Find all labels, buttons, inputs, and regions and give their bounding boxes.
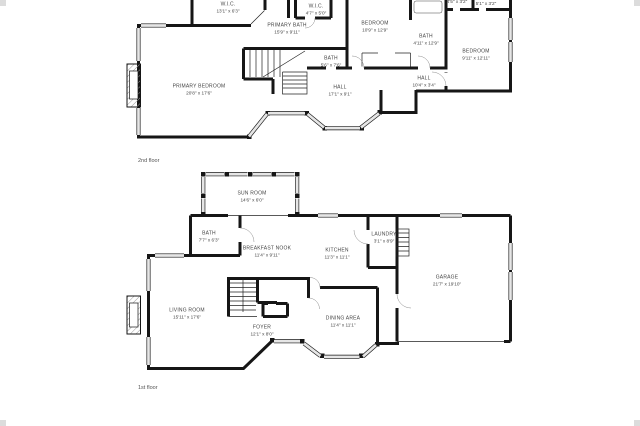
corner-mark <box>634 0 640 6</box>
first-floor-plan <box>127 172 511 369</box>
second-floor-stairs <box>244 49 348 95</box>
corner-mark <box>0 0 6 6</box>
second-floor-plan <box>127 0 511 139</box>
floor-label-2nd: 2nd floor <box>138 158 159 164</box>
floor-label-1st: 1st floor <box>138 385 158 391</box>
bay-post <box>300 339 305 344</box>
bay-post <box>270 338 275 343</box>
floor-plan-drawing <box>0 0 640 426</box>
second-floor-windows <box>139 18 511 137</box>
floor-plan-viewer: W.I.C. 13'1" x 6'3" PRIMARY BATH 15'9" x… <box>0 0 640 426</box>
sun-room-structure <box>201 172 300 217</box>
corner-mark <box>634 420 640 426</box>
corner-mark <box>0 420 6 426</box>
first-floor-stairs <box>229 279 309 317</box>
first-floor-windows <box>149 216 511 366</box>
first-floor-chimney <box>127 296 141 334</box>
second-floor-chimney <box>127 64 141 107</box>
